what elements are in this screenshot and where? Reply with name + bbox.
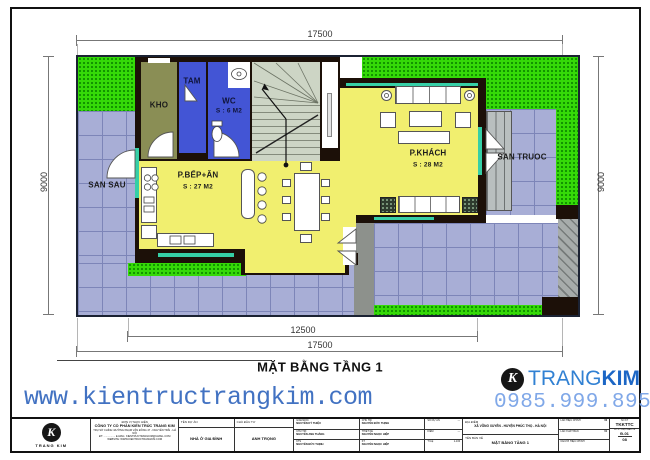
investor-cell: CHỦ ĐẦU TƯ ANH TRỌNG xyxy=(235,419,295,451)
meta-value: — xyxy=(458,419,461,429)
dim-ext xyxy=(128,318,129,336)
sheet-number-cell: SỐ KT TKKTTC SỐ KÝ HIỆU BẢN VẼ Đ-01 08 xyxy=(610,419,639,451)
dim-line-bottom-outer xyxy=(77,351,563,352)
arrow-origin-dot xyxy=(284,163,289,168)
bar-stool xyxy=(258,187,266,195)
meta-value: 1-100 xyxy=(454,440,460,451)
brand-logo: K TRANG KIM xyxy=(501,367,640,391)
dim-tick xyxy=(593,56,604,57)
brand-name-bold: KIM xyxy=(602,367,641,391)
kitchen-sink-basin xyxy=(184,236,195,244)
dim-tick xyxy=(43,56,54,57)
stove-burner xyxy=(144,184,150,190)
divider-line xyxy=(57,360,272,361)
toilet-tank xyxy=(212,121,222,126)
brand-name-regular: TRANG xyxy=(528,367,602,391)
floor-plan: SAN SAU KHO TAM WC S : 6 M2 P.BẾP+ĂN S :… xyxy=(78,57,578,315)
revision-label: NGƯỜI HIỆU CHỈNH xyxy=(561,440,585,451)
trangkim-logo-icon: K xyxy=(501,368,524,391)
role-name: NGUYỄN NGỌC HIỆP xyxy=(362,443,423,446)
title-block: K TRANG KIM ĐƠN VỊ THỰC HIỆN CÔNG TY CỔ … xyxy=(10,417,641,453)
kitchen-sink-basin xyxy=(170,236,181,244)
revision-cell: LẦN HIỆU CHỈNH00 LẦN XUẤT BẢN01 NGƯỜI HI… xyxy=(559,419,611,451)
dim-tick xyxy=(593,314,604,315)
patio-door-leaf-lower xyxy=(338,251,356,265)
label-shower: TAM xyxy=(183,77,200,86)
role-name: NGUYỄN ĐỨC THỊNH xyxy=(296,443,357,446)
label-wc-area: S : 6 M2 xyxy=(216,108,242,115)
role-name: NGUYỄN ĐỨC THỊNH xyxy=(362,422,423,425)
company-website: WEBSITE: WWW.KIENTRUCTRANGKIM.COM xyxy=(91,438,177,441)
drawing-name-value: MẶT BẰNG TẦNG 1 xyxy=(463,440,557,445)
company-cell: ĐƠN VỊ THỰC HIỆN CÔNG TY CỔ PHẦN KIẾN TR… xyxy=(91,419,178,451)
stove-burner xyxy=(152,184,158,190)
stove-burner xyxy=(144,175,150,181)
dim-label-top: 17500 xyxy=(305,29,334,39)
page-title: MẶT BẰNG TẦNG 1 xyxy=(257,360,383,375)
dim-label-bottom-outer: 17500 xyxy=(305,340,334,350)
sheet-total: 08 xyxy=(610,437,639,442)
title-block-logo-cell: K TRANG KIM xyxy=(12,419,91,451)
speaker-cone xyxy=(385,94,389,98)
stair-winder-lines xyxy=(254,63,318,103)
dim-label-left: 9000 xyxy=(39,172,49,192)
door-arc-storage xyxy=(148,132,173,157)
revision-value: 00 xyxy=(604,419,607,429)
meta-label: TỈ LỆ xyxy=(427,440,433,451)
bar-stool xyxy=(258,173,266,181)
revision-label: LẦN HIỆU CHỈNH xyxy=(561,419,581,429)
label-storage: KHO xyxy=(150,101,168,110)
dim-line-bottom-inner xyxy=(128,336,478,337)
project-cell: TÊN DỰ ÁN NHÀ Ở GIA ĐÌNH xyxy=(179,419,235,451)
trangkim-logo-icon-small: K xyxy=(42,423,61,442)
stair-cut-line xyxy=(256,115,318,153)
drawing-sheet: 17500 9000 9000 12500 17500 xyxy=(0,0,650,460)
dim-tick xyxy=(127,331,128,342)
meta-value: — xyxy=(458,430,461,440)
counter-module xyxy=(144,197,154,203)
dim-ext xyxy=(562,44,563,57)
role-name: NGUYỄN KỲ THIỆU xyxy=(296,422,357,425)
project-label: TÊN DỰ ÁN xyxy=(179,419,234,428)
dim-line-top xyxy=(77,40,563,41)
label-wc: WC xyxy=(222,97,236,106)
toilet-bowl xyxy=(212,127,222,142)
label-frontyard: SAN TRUOC xyxy=(497,153,546,162)
label-kitchen-area: S : 27 M2 xyxy=(183,184,213,191)
dim-ext xyxy=(77,318,78,351)
bar-stool xyxy=(258,201,266,209)
stove-burner xyxy=(152,175,158,181)
investor-label: CHỦ ĐẦU TƯ xyxy=(235,419,294,428)
meta-label: SỐ DỰ ÁN xyxy=(427,419,439,429)
entry-door-leaf-upper xyxy=(486,129,504,149)
plan-linework xyxy=(78,57,578,315)
dim-label-right: 9000 xyxy=(596,172,606,192)
meta-cell: SỐ DỰ ÁN— KIỂM— TỈ LỆ1-100 xyxy=(425,419,463,451)
patio-door-leaf-upper xyxy=(338,229,356,243)
investor-value: ANH TRỌNG xyxy=(235,428,294,441)
label-living-area: S : 28 M2 xyxy=(413,162,443,169)
revision-label: LẦN XUẤT BẢN xyxy=(561,430,579,440)
role-name: NGUYỄN NGỌC HIỆP xyxy=(362,433,423,436)
names-cell-b: CHỦ TRÌNGUYỄN ĐỨC THỊNH THIẾT KẾNGUYỄN N… xyxy=(360,419,426,451)
meta-label: KIỂM xyxy=(427,430,433,440)
door-arc-backyard xyxy=(107,150,135,178)
label-kitchen: P.BẾP+ĂN xyxy=(178,171,219,180)
names-cell-a: GIÁM ĐỐCNGUYỄN KỲ THIỆU CHỦ TRÌNGUYỄN AN… xyxy=(294,419,360,451)
phone-number: 0985.999.895 xyxy=(494,391,650,414)
sink-drain xyxy=(237,72,241,76)
location-cell: ĐỊA ĐIỂM XÃ VÕNG XUYÊN - HUYỆN PHÚC THỌ … xyxy=(463,419,558,451)
speaker-cone xyxy=(468,94,472,98)
website-text: www.kientructrangkim.com xyxy=(24,383,372,412)
dim-ext xyxy=(77,44,78,57)
project-value: NHÀ Ở GIA ĐÌNH xyxy=(179,428,234,441)
dim-tick xyxy=(43,314,54,315)
label-living: P.KHÁCH xyxy=(410,149,447,158)
location-value: XÃ VÕNG XUYÊN - HUYỆN PHÚC THỌ - HÀ NỘI xyxy=(463,424,557,428)
shower-door xyxy=(185,85,197,101)
company-name: CÔNG TY CỔ PHẦN KIẾN TRÚC TRANG KIM xyxy=(91,424,177,428)
stair-up-arrow xyxy=(262,89,286,165)
counter-module xyxy=(144,206,154,212)
dim-label-bottom-inner: 12500 xyxy=(288,325,317,335)
dim-tick xyxy=(76,346,77,357)
dim-tick xyxy=(477,331,478,342)
code-value: TKKTTC xyxy=(610,422,639,427)
revision-value: 01 xyxy=(604,430,607,440)
role-name: NGUYỄN ANH THẮNG xyxy=(296,433,357,436)
dim-tick xyxy=(562,346,563,357)
logo-caption: TRANG KIM xyxy=(35,443,67,448)
bar-stool xyxy=(258,215,266,223)
label-backyard: SAN SAU xyxy=(88,181,125,190)
